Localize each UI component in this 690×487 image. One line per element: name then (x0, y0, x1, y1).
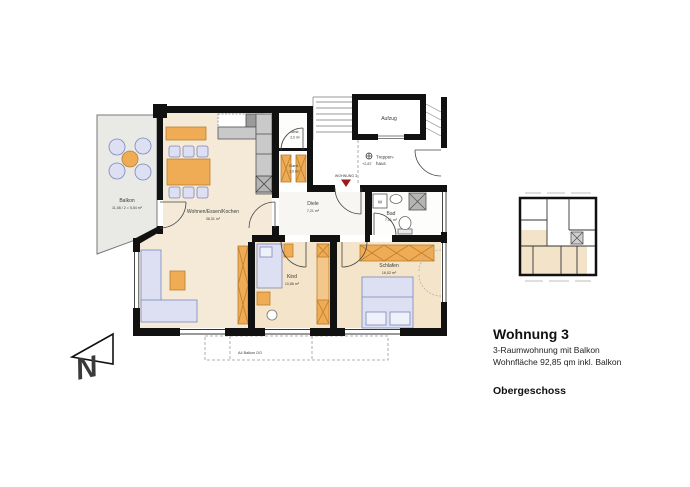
gard-area: 2,0 m² (289, 170, 299, 174)
main-floor-plan: A4 Balkon DG (60, 85, 460, 370)
chair-icon (197, 187, 208, 198)
kind-area: 10,86 m² (285, 282, 300, 286)
kind-label: Kind (287, 274, 297, 280)
chair-icon (169, 187, 180, 198)
stair-flight-icon (313, 97, 352, 140)
washbasin-icon (267, 310, 277, 320)
desk-icon (257, 292, 270, 305)
schlafen-area: 16,02 m² (382, 271, 397, 275)
diele-area: 7,21 m² (307, 209, 320, 213)
shower-icon (409, 193, 426, 210)
wardrobe-icon (317, 244, 329, 324)
pillow-icon (390, 312, 410, 325)
pillow-icon (366, 312, 386, 325)
kitchen-counter-icon (218, 127, 256, 139)
bad-area: 7,01 m² (385, 218, 398, 222)
floor-plan-page: A4 Balkon DG (0, 0, 690, 487)
abst-label: Abst. (290, 129, 299, 134)
chair-icon (197, 146, 208, 157)
wohnen-label: Wohnen/Essen/Kochen (187, 209, 239, 215)
chair-icon (183, 146, 194, 157)
schlafen-label: Schlafen (379, 263, 399, 269)
balcony-chair-icon (135, 138, 151, 154)
wohnen-area: 38,31 m² (206, 217, 221, 221)
treppenhaus-label2: haus (376, 161, 387, 166)
north-arrow: N (65, 325, 120, 387)
balcony-above-label: A4 Balkon DG (238, 351, 262, 355)
dining-table-icon (167, 159, 210, 185)
sofa-icon (141, 300, 197, 322)
apartment-subtitle-2: Wohnfläche 92,85 qm inkl. Balkon (493, 357, 678, 369)
apartment-subtitle-1: 3-Raumwohnung mit Balkon (493, 345, 678, 357)
floor-label: Obergeschoss (493, 385, 678, 397)
sofa-icon (141, 250, 161, 306)
chair-icon (169, 146, 180, 157)
diele-label: Diele (307, 201, 319, 207)
gard-label: Gard. (289, 163, 299, 168)
balcony-chair-icon (135, 164, 151, 180)
legend-block: Wohnung 3 3-Raumwohnung mit Balkon Wohnf… (493, 326, 678, 397)
balkon-label: Balkon (119, 198, 135, 204)
coffee-table-icon (170, 271, 185, 290)
balcony-above-outline (205, 336, 388, 360)
apartment-title: Wohnung 3 (493, 326, 678, 342)
balcony-chair-icon (109, 163, 125, 179)
sideboard-icon (166, 127, 206, 140)
kitchen-sink-icon (256, 176, 272, 192)
level-marker-icon (366, 153, 372, 159)
treppenhaus-label: Treppen- (376, 155, 395, 160)
balcony-table-icon (122, 151, 138, 167)
balkon-area: 11,08 / 2 = 5,54 m² (112, 206, 143, 210)
room-diele (279, 192, 365, 235)
sink-icon (390, 195, 402, 204)
toilet-icon (398, 217, 412, 235)
railing-hatch-icon (426, 104, 441, 136)
chair-icon (183, 187, 194, 198)
shelf-icon (284, 244, 293, 257)
abst-area: 2,0 m² (290, 136, 300, 140)
cabinet-icon (238, 246, 248, 324)
key-plan (513, 190, 603, 295)
kitchen-counter-icon (218, 114, 246, 127)
entrance-marker-label: WOHNUNG 3 (335, 174, 357, 178)
balcony-chair-icon (109, 139, 125, 155)
pillow-icon (260, 247, 272, 257)
key-plan-stair-icon (571, 232, 583, 244)
bad-label: Bad (387, 211, 396, 217)
aufzug-label: Aufzug (381, 116, 397, 122)
wardrobe-icon (360, 245, 434, 261)
level-value: +2,87 (362, 162, 372, 166)
